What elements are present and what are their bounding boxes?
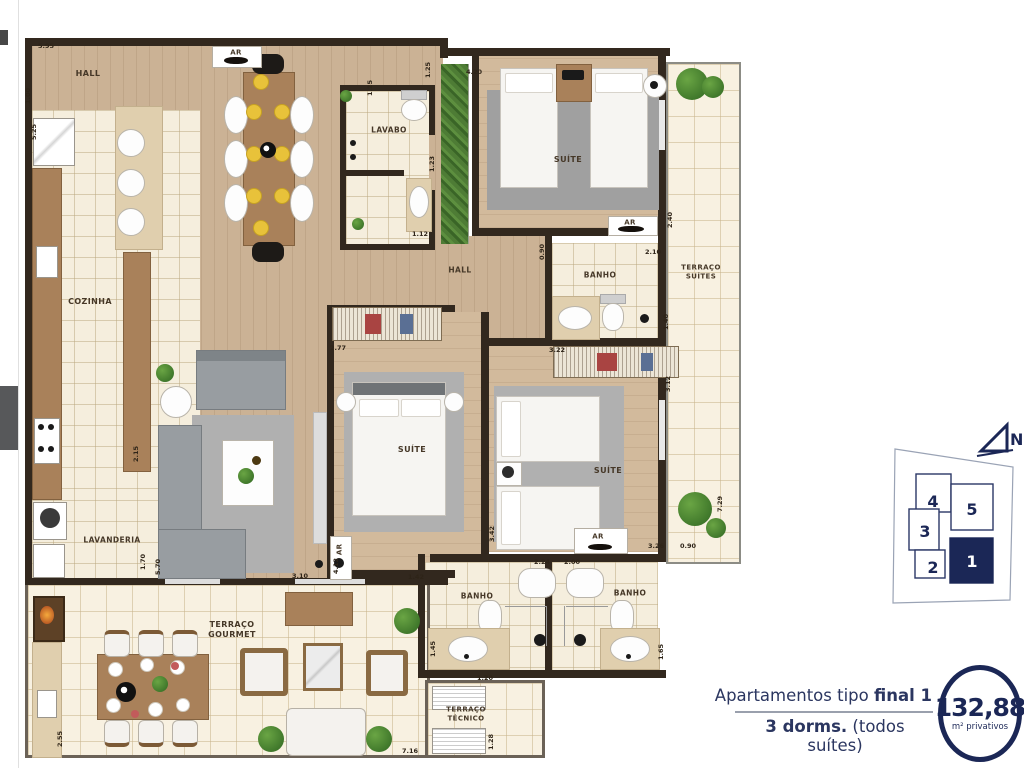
keyplan-unit-4-label: 4 — [927, 492, 938, 511]
keyplan-unit-5-label: 5 — [966, 500, 977, 519]
dim: 5.25 — [30, 124, 38, 140]
wall — [340, 85, 346, 250]
plant — [258, 726, 284, 752]
key-plan: N 4 5 3 2 1 — [883, 415, 1024, 615]
room-label-terraco-tecnico: TERRAÇO TÉCNICO — [446, 705, 486, 723]
single-bed — [496, 396, 600, 462]
plant — [678, 492, 712, 526]
north-label: N — [1010, 430, 1023, 449]
pillow — [501, 401, 521, 457]
dining-chair — [224, 96, 248, 134]
room-label-terraco-gourmet: TERRAÇO GOURMET — [208, 620, 256, 640]
bathtub — [566, 568, 604, 598]
lounge-chair — [366, 650, 408, 696]
plant — [156, 364, 174, 382]
area-value: 132,88 — [935, 695, 1024, 720]
wall — [25, 578, 448, 585]
wall — [346, 170, 404, 176]
stool — [117, 129, 145, 157]
shower-head — [574, 634, 586, 646]
bed — [590, 68, 648, 188]
dim: 3.22 — [549, 346, 565, 354]
apartment-type-text: Apartamentos tipo — [715, 686, 874, 705]
side-table-decor — [650, 81, 658, 89]
faucet — [464, 654, 469, 659]
floor-terraco-suites — [666, 62, 741, 564]
outdoor-chair — [104, 630, 130, 657]
dim: 1.65 — [657, 644, 665, 660]
dim: 1.20 — [477, 674, 493, 682]
outdoor-chair — [104, 720, 130, 747]
dim: 3.26 — [648, 542, 664, 550]
closet-clothes — [365, 314, 380, 333]
dim: 2.15 — [132, 446, 140, 462]
sink — [409, 186, 429, 218]
table-bowl — [238, 468, 254, 484]
dining-chair — [224, 184, 248, 222]
wardrobe — [332, 307, 442, 341]
plant — [394, 608, 420, 634]
table-decor — [252, 456, 261, 465]
shower-head — [534, 634, 546, 646]
outdoor-chair — [138, 630, 164, 657]
fridge — [33, 118, 75, 166]
bedrooms-line: 3 dorms. (todos suítes) — [737, 717, 933, 755]
stool — [117, 208, 145, 236]
keyplan-unit-2-label: 2 — [927, 558, 938, 577]
place-setting — [274, 188, 290, 204]
kitchen-sink — [36, 246, 58, 278]
dim: 1.28 — [487, 734, 495, 750]
burner — [48, 446, 54, 452]
laundry-tub — [33, 544, 65, 578]
pillow — [501, 491, 521, 545]
nightstand — [444, 392, 464, 412]
dining-chair — [290, 96, 314, 134]
wall — [440, 48, 670, 56]
tv-panel — [313, 412, 327, 544]
pillow — [595, 73, 643, 93]
wall — [429, 85, 435, 135]
plate — [148, 702, 163, 717]
lounge-table — [303, 643, 343, 691]
headboard — [353, 383, 445, 395]
dim: 1.45 — [429, 641, 437, 657]
pillow — [505, 73, 553, 93]
burner — [38, 424, 44, 430]
washer-drum — [40, 508, 60, 528]
shower-glass — [564, 606, 565, 646]
place-setting — [253, 74, 269, 90]
dim: 1.42 — [408, 573, 424, 581]
room-label-banho-top: BANHO — [584, 270, 616, 279]
north-arrow-icon — [981, 425, 1007, 451]
dim: 2.00 — [564, 558, 580, 566]
bathtub — [518, 568, 556, 598]
closet-clothes — [400, 314, 413, 333]
room-label-hall-top: HALL — [76, 69, 101, 79]
room-label-ar-suite-center: AR — [335, 544, 344, 556]
terrace-sink — [37, 690, 57, 718]
shower-glass — [566, 606, 608, 607]
plant — [352, 218, 364, 230]
place-setting — [274, 104, 290, 120]
closet-clothes — [641, 353, 653, 371]
dim: 3.12 — [664, 376, 672, 392]
room-label-banho-bottom-right: BANHO — [614, 588, 646, 597]
room-label-suite-twin: SUÍTE — [594, 466, 622, 476]
dining-chair — [224, 140, 248, 178]
page-edge-line — [18, 0, 19, 768]
dim: 0.90 — [680, 542, 696, 550]
ac-vent — [588, 544, 612, 550]
vertical-garden — [441, 64, 469, 244]
wardrobe — [553, 346, 679, 378]
room-label-terraco-suites: TERRAÇO SUÍTES — [681, 263, 721, 281]
dim: 4.20 — [466, 68, 482, 76]
burner — [48, 424, 54, 430]
keyplan-unit-1-label: 1 — [966, 552, 977, 571]
room-label-suite-top: SUÍTE — [554, 155, 582, 165]
dim: 3.10 — [292, 572, 308, 580]
pillow — [401, 399, 441, 417]
serving-bowl — [116, 682, 136, 702]
dim: 2.10 — [645, 248, 661, 256]
dining-chair — [290, 184, 314, 222]
dim: 7.29 — [716, 496, 724, 512]
dim: 5.70 — [154, 559, 162, 575]
plant — [706, 518, 726, 538]
shower-glass — [546, 606, 547, 646]
dim: 2.77 — [330, 344, 346, 352]
sofa-l-horizontal — [158, 529, 246, 579]
page-side-tab — [0, 386, 18, 450]
sofa-back — [197, 351, 285, 361]
plate — [176, 698, 190, 712]
plant — [366, 726, 392, 752]
lounge-chair — [240, 648, 288, 696]
window-gap — [165, 579, 220, 584]
side-table — [160, 386, 192, 418]
plate — [108, 662, 123, 677]
wall — [25, 38, 32, 585]
dim: 1.12 — [412, 230, 428, 238]
dim: 1.25 — [424, 62, 432, 78]
dim: 1.25 — [366, 80, 374, 96]
bbq-grill — [33, 596, 65, 642]
bbq-fire — [40, 606, 54, 624]
faucet — [626, 654, 631, 659]
info-divider — [735, 711, 933, 713]
outdoor-chair — [172, 630, 198, 657]
dim: 7.16 — [402, 747, 418, 755]
room-label-ar-top: AR — [230, 49, 242, 58]
plant — [340, 90, 352, 102]
room-label-ar-suite-top: AR — [624, 219, 636, 228]
keyplan-unit-3-label: 3 — [919, 522, 930, 541]
loveseat — [196, 350, 286, 410]
terrace-door-gap — [659, 100, 665, 150]
napkin — [171, 662, 179, 670]
apartment-type-bold: final 1 — [874, 686, 932, 705]
dim: 2.40 — [666, 212, 674, 228]
tv-dot — [315, 560, 323, 568]
spotlight — [350, 140, 356, 146]
dim: 0.90 — [538, 244, 546, 260]
wall — [418, 670, 666, 678]
plate — [106, 698, 121, 713]
dim: 1.23 — [428, 156, 436, 172]
place-setting — [274, 146, 290, 162]
tv — [562, 70, 584, 80]
terrace-bench — [285, 592, 353, 626]
room-label-banho-bottom-left: BANHO — [461, 591, 493, 600]
dim: 2.55 — [56, 731, 64, 747]
page-corner-mark — [0, 30, 8, 45]
wall — [481, 312, 489, 560]
dim: 1.40 — [662, 314, 670, 330]
room-label-cozinha: COZINHA — [68, 297, 112, 307]
lamp — [502, 466, 514, 478]
outdoor-chair — [172, 720, 198, 747]
burner — [38, 446, 44, 452]
centerpiece — [152, 676, 168, 692]
dining-chair — [290, 140, 314, 178]
dim: 4.12 — [332, 558, 340, 574]
dining-chair — [252, 242, 284, 262]
dim: 1.00 — [24, 88, 32, 104]
area-badge: 132,88 m² privativos — [938, 665, 1022, 762]
plate — [140, 658, 154, 672]
place-setting — [246, 104, 262, 120]
place-setting — [246, 188, 262, 204]
ac-condenser — [432, 728, 486, 754]
closet-clothes — [597, 353, 617, 371]
terrace-door-gap — [659, 400, 665, 460]
shower-glass — [505, 606, 547, 607]
floor-plan-image: HALL AR COZINHA LAVABO SUÍTE AR BANHO TE… — [0, 0, 1024, 768]
area-unit: m² privativos — [952, 722, 1008, 732]
wall — [340, 244, 435, 250]
room-label-hall-center: HALL — [448, 265, 471, 274]
toilet — [602, 303, 624, 331]
napkin — [131, 710, 139, 718]
bed — [500, 68, 558, 188]
nightstand — [336, 392, 356, 412]
shower-head — [640, 314, 649, 323]
room-label-lavanderia: LAVANDERIA — [83, 535, 140, 544]
spotlight — [350, 154, 356, 160]
pillow — [359, 399, 399, 417]
outdoor-sofa — [286, 708, 366, 756]
wall — [472, 56, 479, 236]
ac-vent — [224, 57, 248, 64]
wall — [25, 38, 448, 46]
wall — [545, 236, 552, 346]
dim: 5.95 — [38, 42, 54, 50]
apartment-type-line: Apartamentos tipo final 1 — [700, 686, 932, 705]
stool — [117, 169, 145, 197]
room-label-suite-center: SUÍTE — [398, 445, 426, 455]
centerpiece-bowl — [260, 142, 276, 158]
dim: 1.70 — [139, 554, 147, 570]
place-setting — [253, 220, 269, 236]
dim: 2.24 — [534, 558, 550, 566]
plant — [702, 76, 724, 98]
toilet — [401, 99, 427, 121]
bedrooms-bold: 3 dorms. — [765, 717, 847, 736]
room-label-lavabo: LAVABO — [371, 125, 407, 134]
room-label-ar-twin: AR — [592, 533, 604, 542]
outdoor-chair — [138, 720, 164, 747]
sideboard — [123, 252, 151, 472]
dim: 3.42 — [488, 526, 496, 542]
sink — [558, 306, 592, 330]
